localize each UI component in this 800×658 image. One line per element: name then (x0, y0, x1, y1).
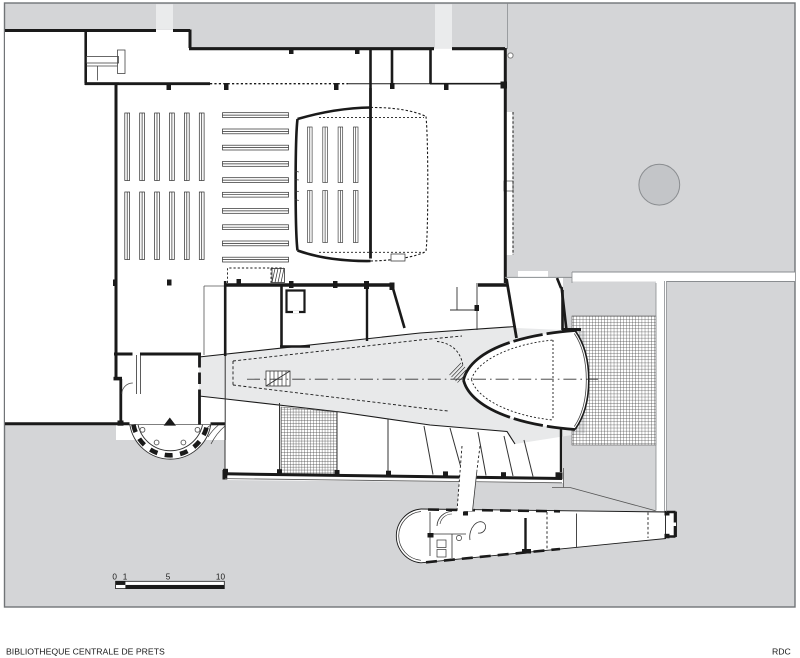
svg-text:RDC: RDC (772, 647, 791, 657)
svg-text:10: 10 (216, 573, 226, 582)
svg-text:BIBLIOTHEQUE CENTRALE DE PRETS: BIBLIOTHEQUE CENTRALE DE PRETS (6, 647, 165, 657)
svg-text:1: 1 (123, 573, 128, 582)
svg-text:0: 0 (112, 573, 117, 582)
svg-text:5: 5 (166, 573, 171, 582)
